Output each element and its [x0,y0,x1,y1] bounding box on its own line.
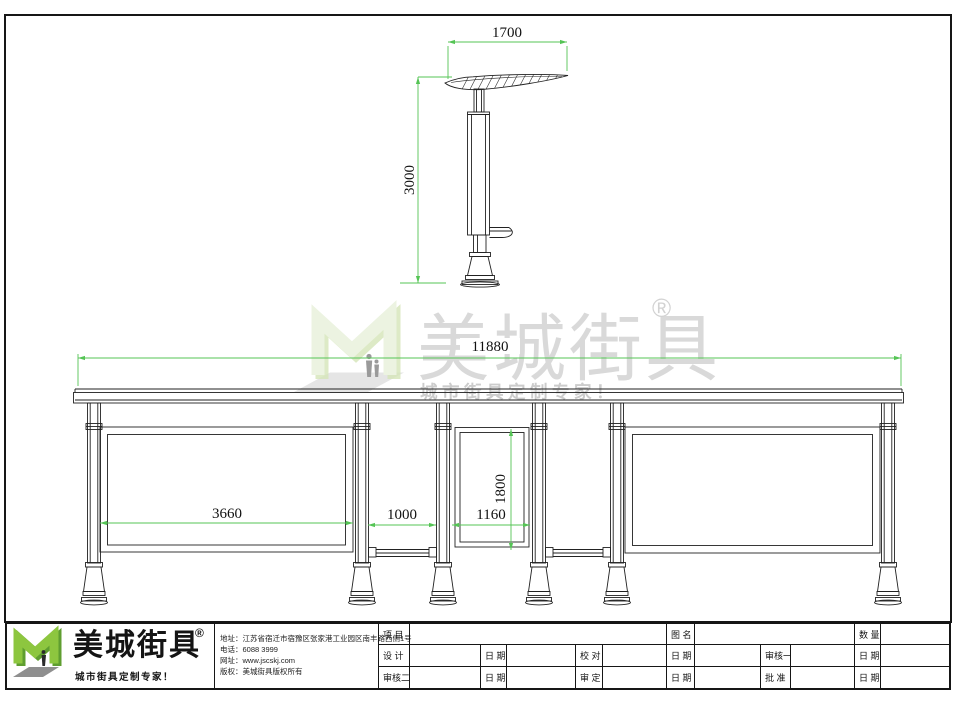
drawing-sheet: 美城街具 ® 城市街具定制专家！ [0,0,960,704]
dim-canopy-width [448,40,567,79]
field-date-value [881,667,949,688]
watermark-registered-mark: ® [652,293,671,323]
dim-lightbox-width [452,523,530,527]
field-drawing-name-value [695,624,855,645]
field-proofread-label: 校 对 [576,645,603,666]
field-ratify-value [791,667,855,688]
field-date-label: 日 期 [855,645,881,666]
dim-text-1000: 1000 [387,507,417,523]
dim-lightbox-height [509,429,513,550]
field-approve-value [603,667,667,688]
canopy [445,70,568,97]
field-design-value [410,645,481,666]
watermark-tagline: 城市街具定制专家！ [420,382,618,402]
registered-mark: ® [195,626,204,640]
dim-text-1700: 1700 [492,25,522,41]
side-column [461,89,513,287]
watermark-m-logo [294,315,404,392]
field-date-label: 日 期 [667,667,695,688]
lightbox-panel [455,428,529,548]
field-date-value [881,645,949,666]
logo-shadow [13,667,59,677]
field-date-value [507,645,576,666]
field-date-label: 日 期 [855,667,881,688]
right-ad-panel [625,427,880,553]
field-reviewer2-label: 审核二 [379,667,410,688]
field-date-label: 日 期 [667,645,695,666]
bottom-rail-right [546,548,611,558]
title-block: 美城街具 ® 城市街具定制专家！ 地址：江苏省宿迁市宿豫区张家港工业园区南丰路西… [5,622,951,690]
field-approve-label: 审 定 [576,667,603,688]
dim-text-3660: 3660 [212,506,242,522]
field-date-label: 日 期 [481,667,507,688]
left-ad-panel [100,427,353,552]
side-bracket [490,228,513,238]
bottom-rail-left [369,548,437,558]
cad-drawing: 美城街具 ® 城市街具定制专家！ [0,0,960,704]
field-reviewer1-value [791,645,855,666]
dim-text-3000: 3000 [402,165,418,195]
field-project-value [410,624,667,645]
field-design-label: 设 计 [379,645,410,666]
company-name: 美城街具 [73,629,201,663]
dim-text-1800: 1800 [493,474,509,504]
side-column-base [461,235,500,287]
side-view [445,70,568,287]
field-quantity-label: 数 量 [855,624,881,645]
field-drawing-name-label: 图 名 [667,624,695,645]
field-date-value [507,667,576,688]
field-reviewer1-label: 审核一 [761,645,791,666]
field-project-label: 项 目 [379,624,410,645]
company-logo [7,624,67,680]
dim-text-1160: 1160 [476,507,505,523]
company-tagline: 城市街具定制专家！ [75,669,174,683]
field-proofread-value [603,645,667,666]
divider [214,624,215,688]
dim-text-11880: 11880 [472,339,509,355]
front-elevation [74,389,904,605]
field-reviewer2-value [410,667,481,688]
signature-table: 项 目 图 名 数 量 设 计 日 期 校 对 日 期 审核一 日 期 审核二 … [379,624,949,688]
field-date-label: 日 期 [481,645,507,666]
field-ratify-label: 批 准 [761,667,791,688]
dim-gap-width [368,523,436,527]
field-date-value [695,667,761,688]
field-date-value [695,645,761,666]
columns [81,403,902,605]
field-quantity-value [881,624,949,645]
